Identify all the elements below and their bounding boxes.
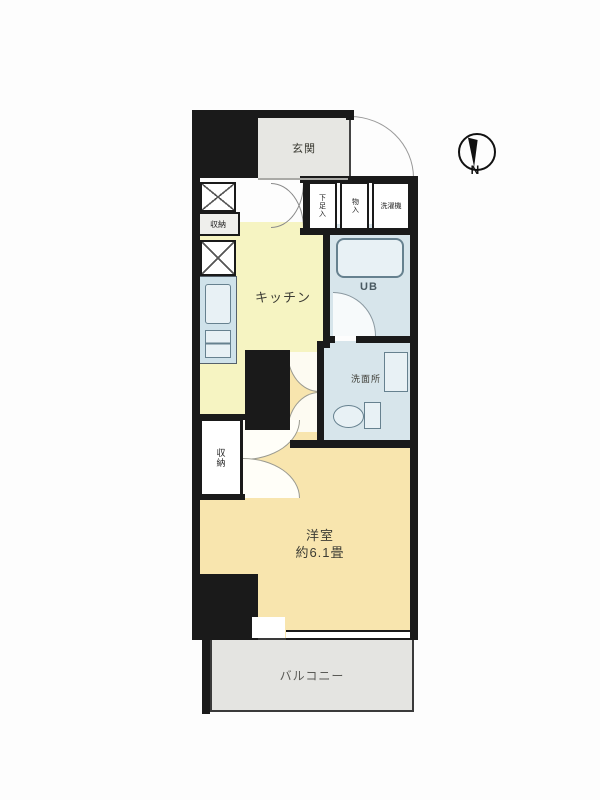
unit-bath-label-text: UB bbox=[360, 281, 378, 293]
unit-bath-label: UB bbox=[352, 280, 386, 294]
wall-compartments-left bbox=[303, 176, 310, 232]
wall-left bbox=[192, 110, 200, 640]
balcony: バルコニー bbox=[210, 638, 414, 712]
wall-right bbox=[410, 176, 418, 640]
shoe-box: 下足入 bbox=[306, 182, 337, 230]
western-room-size: 約6.1畳 bbox=[295, 544, 344, 561]
wall-washroom-bottom bbox=[290, 440, 418, 448]
entrance-door-leaf bbox=[349, 118, 351, 178]
pipe-space-box-top bbox=[200, 182, 236, 212]
wall-closet-top bbox=[192, 414, 245, 420]
genkan-label: 玄関 bbox=[292, 140, 316, 156]
balcony-label: バルコニー bbox=[280, 667, 345, 684]
cupboard-label: 物入 bbox=[350, 198, 360, 214]
toilet-bowl-icon bbox=[333, 405, 364, 428]
western-room-label: 洋室 約6.1畳 bbox=[250, 526, 390, 562]
wall-entrance-stub bbox=[346, 110, 354, 120]
sink-icon bbox=[205, 284, 231, 324]
wall-bath-washroom-a bbox=[323, 336, 335, 343]
hall-storage-label: 収納 bbox=[210, 219, 226, 230]
wall-balcony-left bbox=[202, 638, 210, 714]
compass-label: N bbox=[466, 163, 484, 177]
western-room-name: 洋室 bbox=[306, 527, 334, 544]
toilet-tank-icon bbox=[364, 402, 381, 429]
wall-notch bbox=[252, 617, 285, 638]
cupboard-box: 物入 bbox=[340, 182, 369, 230]
window-balcony bbox=[286, 630, 410, 640]
wall-mass-top-left bbox=[192, 110, 258, 178]
room-genkan: 玄関 bbox=[258, 115, 350, 180]
wall-closet-bottom bbox=[192, 494, 245, 500]
wall-bath-washroom-b bbox=[356, 336, 418, 343]
compass-label-text: N bbox=[471, 163, 480, 177]
kitchen-label-text: キッチン bbox=[255, 287, 311, 306]
hall-storage-box: 収納 bbox=[196, 212, 240, 236]
shoe-box-label: 下足入 bbox=[317, 194, 327, 218]
washer-label: 洗濯機 bbox=[381, 201, 402, 211]
washroom-label: 洗面所 bbox=[327, 372, 405, 384]
pipe-space-box-bottom bbox=[200, 240, 236, 276]
washroom-label-text: 洗面所 bbox=[351, 372, 381, 385]
wall-mass-middle bbox=[245, 350, 290, 430]
closet-label: 収納 bbox=[215, 448, 228, 468]
closet-box: 収納 bbox=[199, 418, 243, 498]
wall-washroom-left bbox=[317, 341, 324, 447]
washer-space-box: 洗濯機 bbox=[372, 182, 410, 230]
entrance-door-arc bbox=[350, 116, 414, 178]
floorplan-canvas: 玄関 バルコニー 収納 下足入 物入 洗濯機 収納 bbox=[0, 0, 600, 800]
kitchen-label: キッチン bbox=[243, 288, 323, 304]
bathtub-icon bbox=[336, 238, 404, 278]
wall-compartments-bottom bbox=[300, 228, 418, 235]
wall-kitchen-bath bbox=[323, 228, 330, 348]
genkan-step-line bbox=[258, 178, 348, 180]
stove-icon bbox=[205, 330, 231, 358]
wall-mass-bottom-left bbox=[192, 574, 258, 640]
